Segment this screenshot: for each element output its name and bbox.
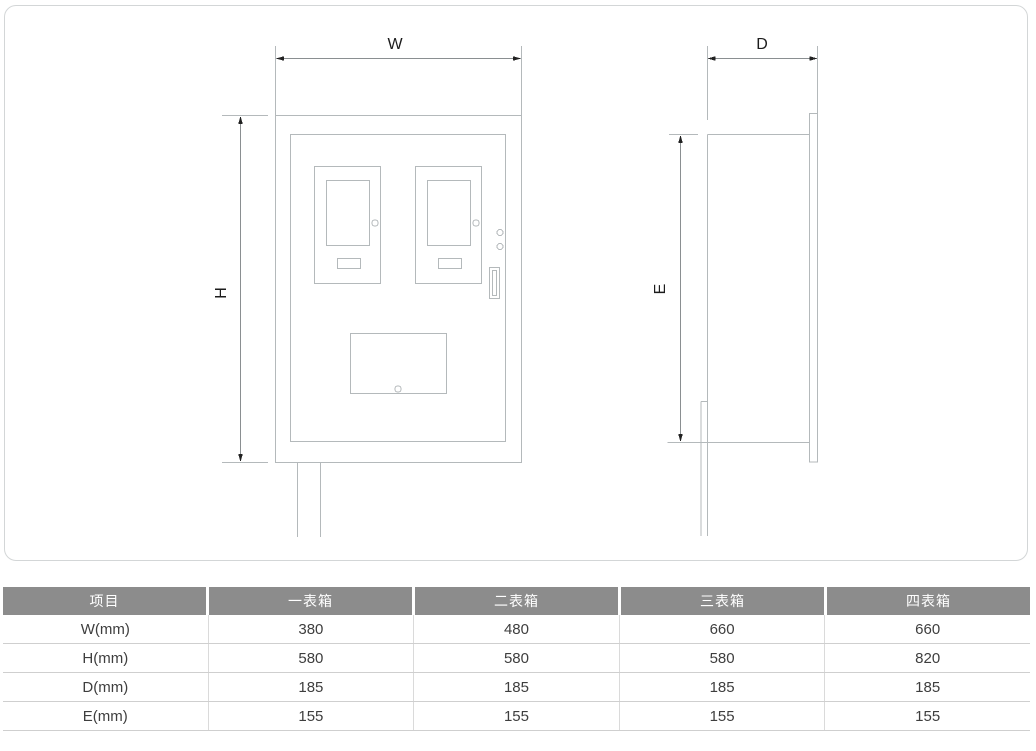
cabinet-door bbox=[291, 135, 506, 442]
diagram-panel: W H bbox=[4, 5, 1028, 561]
meter-knob-2 bbox=[473, 220, 479, 226]
side-view bbox=[668, 46, 818, 536]
row-label: W(mm) bbox=[3, 615, 209, 643]
d-arrow-right bbox=[810, 56, 818, 61]
card-reader-slot-inner bbox=[493, 271, 497, 296]
cell-value: 580 bbox=[414, 644, 620, 672]
meter-slot-2 bbox=[439, 259, 462, 269]
meter-display-2 bbox=[428, 181, 471, 246]
header-cell-item: 项目 bbox=[3, 587, 206, 615]
cell-value: 580 bbox=[209, 644, 415, 672]
e-dimension-label: E bbox=[652, 284, 669, 295]
cell-value: 185 bbox=[209, 673, 415, 701]
table-row-e: E(mm) 155 155 155 155 bbox=[3, 702, 1030, 731]
header-cell-one-meter-box: 一表箱 bbox=[209, 587, 412, 615]
cell-value: 185 bbox=[825, 673, 1030, 701]
cell-value: 155 bbox=[825, 702, 1030, 730]
technical-drawing: W H bbox=[5, 6, 1033, 562]
meter-window-1 bbox=[315, 167, 381, 284]
header-cell-three-meter-box: 三表箱 bbox=[621, 587, 824, 615]
cell-value: 185 bbox=[414, 673, 620, 701]
card-reader-slot bbox=[490, 268, 500, 299]
meter-slot-1 bbox=[338, 259, 361, 269]
cell-value: 580 bbox=[620, 644, 826, 672]
front-view bbox=[222, 46, 522, 537]
row-label: H(mm) bbox=[3, 644, 209, 672]
meter-window-2 bbox=[416, 167, 482, 284]
mounting-flange bbox=[810, 114, 818, 463]
h-arrow-bottom bbox=[238, 454, 243, 462]
row-label: E(mm) bbox=[3, 702, 209, 730]
header-cell-four-meter-box: 四表箱 bbox=[827, 587, 1030, 615]
w-dimension-label: W bbox=[387, 36, 403, 53]
door-screw-bottom bbox=[497, 244, 503, 250]
cell-value: 660 bbox=[825, 615, 1030, 643]
table-row-h: H(mm) 580 580 580 820 bbox=[3, 644, 1030, 673]
cell-value: 155 bbox=[620, 702, 826, 730]
cell-value: 155 bbox=[414, 702, 620, 730]
page: W H bbox=[0, 0, 1036, 751]
h-dimension-label: H bbox=[213, 287, 230, 299]
header-cell-two-meter-box: 二表箱 bbox=[415, 587, 618, 615]
d-arrow-left bbox=[708, 56, 716, 61]
table-header-row: 项目 一表箱 二表箱 三表箱 四表箱 bbox=[3, 587, 1030, 615]
door-screw-top bbox=[497, 230, 503, 236]
h-arrow-top bbox=[238, 116, 243, 124]
e-arrow-bottom bbox=[678, 434, 683, 442]
meter-knob-1 bbox=[372, 220, 378, 226]
row-label: D(mm) bbox=[3, 673, 209, 701]
cell-value: 155 bbox=[209, 702, 415, 730]
meter-display-1 bbox=[327, 181, 370, 246]
table-row-d: D(mm) 185 185 185 185 bbox=[3, 673, 1030, 702]
side-view-dimensions: D E bbox=[652, 36, 818, 442]
breaker-window bbox=[351, 334, 447, 394]
cell-value: 185 bbox=[620, 673, 826, 701]
d-dimension-label: D bbox=[756, 36, 768, 53]
cell-value: 480 bbox=[414, 615, 620, 643]
cabinet-outer-box bbox=[276, 116, 522, 463]
w-arrow-left bbox=[276, 56, 284, 61]
cell-value: 380 bbox=[209, 615, 415, 643]
front-view-dimensions: W H bbox=[213, 36, 521, 462]
cell-value: 820 bbox=[825, 644, 1030, 672]
w-arrow-right bbox=[513, 56, 521, 61]
e-arrow-top bbox=[678, 135, 683, 143]
table-row-w: W(mm) 380 480 660 660 bbox=[3, 615, 1030, 644]
cell-value: 660 bbox=[620, 615, 826, 643]
breaker-knob bbox=[395, 386, 401, 392]
dimension-table: 项目 一表箱 二表箱 三表箱 四表箱 W(mm) 380 480 660 660… bbox=[3, 587, 1030, 731]
